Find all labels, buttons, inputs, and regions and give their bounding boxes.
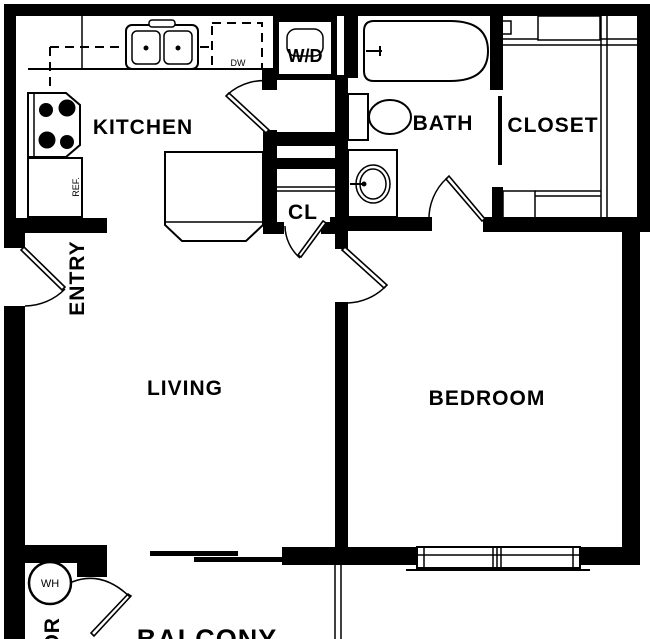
wall-tub-closet: [490, 16, 503, 90]
floor-plan: WH W/D KITCHEN BATH CLOSET CL LIVING BED…: [0, 0, 650, 639]
entry-label: ENTRY: [66, 240, 89, 315]
wall-kitchen-bottom: [16, 218, 107, 233]
wall-living-bottom: [16, 545, 107, 563]
refrigerator-label: REF.: [71, 177, 81, 197]
wall-counter-stub: [262, 68, 277, 90]
washer-dryer-label: W/D: [288, 46, 323, 66]
bathtub: [364, 21, 488, 81]
wall-bedroom-door-jamb: [335, 228, 348, 249]
wall-storage-stub: [77, 563, 107, 577]
floor-background: [0, 0, 650, 639]
wall-right-bedroom: [622, 232, 640, 565]
bath-label: BATH: [413, 112, 474, 135]
wall-top: [4, 4, 648, 16]
wall-left-lower: [4, 306, 25, 639]
dishwasher-label: DW: [231, 58, 246, 68]
closet-label: CLOSET: [507, 114, 598, 137]
floor-plan-drawing: WH W/D KITCHEN BATH CLOSET CL LIVING BED…: [0, 0, 650, 639]
kitchen-sink: [126, 20, 198, 69]
closet-cabinet: [538, 16, 600, 40]
wall-closet-left-stub: [492, 187, 503, 218]
wall-bottom-center: [282, 547, 417, 565]
water-heater: WH: [29, 562, 71, 604]
faucet-icon: [149, 20, 175, 27]
bedroom-label: BEDROOM: [429, 387, 546, 410]
living-label: LIVING: [147, 377, 223, 400]
wall-hall-bath: [335, 75, 348, 217]
wall-closet-bottom: [483, 217, 637, 232]
bathroom-vanity-sink: [348, 150, 397, 217]
hall-closet-label: CL: [288, 201, 318, 224]
wall-right-closet: [637, 4, 650, 232]
wall-bottom-right: [580, 547, 624, 565]
bedroom-window: [406, 547, 590, 570]
storage-label: STOR: [41, 617, 64, 639]
kitchen-peninsula: [165, 152, 263, 241]
wall-cl-bottom-left: [263, 222, 284, 234]
closet-shelf-unit: [503, 191, 535, 218]
wall-cl-shelfband: [277, 158, 335, 169]
balcony-label: BALCONY: [137, 624, 278, 639]
water-heater-label: WH: [41, 578, 59, 590]
wall-living-bedroom: [335, 302, 348, 547]
washer-dryer-unit: W/D: [287, 29, 323, 66]
wall-wd-bath: [344, 16, 358, 78]
kitchen-label: KITCHEN: [93, 116, 193, 139]
stove: [28, 93, 80, 157]
wall-left-upper: [4, 4, 16, 218]
